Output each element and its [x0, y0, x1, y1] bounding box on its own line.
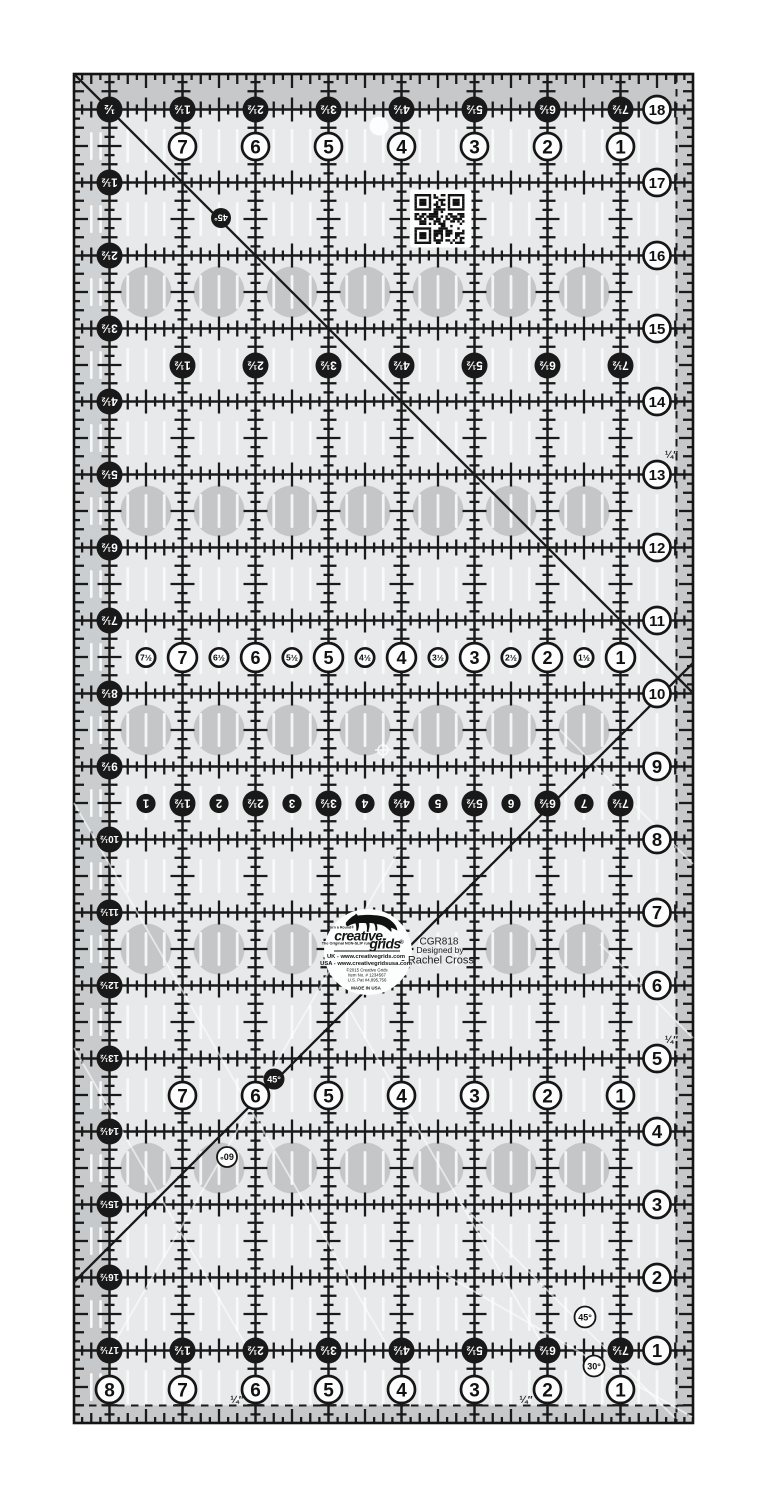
svg-text:13: 13 — [649, 467, 666, 484]
svg-text:1½: 1½ — [174, 102, 191, 116]
svg-text:2: 2 — [542, 648, 552, 668]
svg-text:2: 2 — [216, 796, 222, 808]
svg-text:13½: 13½ — [100, 1052, 119, 1063]
svg-text:5: 5 — [323, 648, 333, 668]
svg-text:4½: 4½ — [101, 394, 118, 408]
svg-text:11: 11 — [649, 613, 665, 630]
svg-text:10½: 10½ — [100, 833, 119, 844]
svg-text:4: 4 — [361, 796, 368, 808]
svg-text:The Original NON-SLIP ruler™: The Original NON-SLIP ruler™ — [322, 941, 377, 945]
svg-text:3: 3 — [652, 1194, 662, 1215]
svg-text:1: 1 — [615, 1086, 626, 1107]
svg-text:2½: 2½ — [101, 248, 118, 262]
svg-text:45°: 45° — [214, 213, 228, 223]
svg-text:6: 6 — [250, 648, 260, 668]
svg-text:12: 12 — [649, 540, 666, 557]
svg-text:6½: 6½ — [539, 102, 556, 116]
svg-text:7½: 7½ — [612, 102, 629, 116]
svg-text:15½: 15½ — [100, 1198, 119, 1209]
svg-text:1: 1 — [615, 648, 625, 668]
svg-text:4: 4 — [652, 1121, 663, 1142]
svg-text:2½: 2½ — [247, 1343, 264, 1357]
svg-text:7½: 7½ — [612, 1343, 629, 1357]
svg-text:6½: 6½ — [539, 796, 556, 810]
svg-text:4: 4 — [396, 648, 406, 668]
svg-text:2½: 2½ — [247, 796, 264, 810]
svg-text:1½: 1½ — [174, 358, 191, 372]
svg-text:6: 6 — [652, 975, 662, 996]
svg-text:12½: 12½ — [100, 979, 119, 990]
svg-text:5½: 5½ — [466, 1343, 483, 1357]
svg-text:¼″: ¼″ — [519, 1395, 532, 1406]
svg-text:USA - www.creativegridsusa.com: USA - www.creativegridsusa.com — [320, 961, 412, 967]
svg-text:U.S. Pat #4,895,756: U.S. Pat #4,895,756 — [348, 978, 387, 983]
svg-text:4½: 4½ — [393, 796, 410, 810]
svg-text:2½: 2½ — [505, 653, 517, 663]
svg-text:16½: 16½ — [100, 1271, 119, 1282]
svg-text:1½: 1½ — [101, 175, 118, 189]
svg-text:4½: 4½ — [393, 358, 410, 372]
svg-text:6: 6 — [250, 1380, 261, 1401]
svg-text:30°: 30° — [587, 1362, 601, 1372]
svg-text:45°: 45° — [578, 1313, 592, 1323]
svg-text:3½: 3½ — [320, 1343, 337, 1357]
svg-text:3½: 3½ — [432, 653, 444, 663]
svg-text:2: 2 — [652, 1267, 662, 1288]
svg-text:7: 7 — [177, 137, 188, 158]
svg-text:6: 6 — [250, 137, 261, 158]
svg-text:7½: 7½ — [101, 613, 118, 627]
svg-text:2: 2 — [542, 1380, 553, 1401]
svg-text:5½: 5½ — [286, 653, 298, 663]
svg-text:9½: 9½ — [101, 759, 118, 773]
svg-text:5½: 5½ — [466, 796, 483, 810]
svg-text:11½: 11½ — [100, 906, 119, 917]
svg-text:3½: 3½ — [320, 358, 337, 372]
svg-text:7: 7 — [652, 902, 662, 923]
svg-text:16: 16 — [649, 248, 666, 265]
svg-text:9: 9 — [652, 756, 662, 777]
svg-text:7½: 7½ — [612, 796, 629, 810]
svg-text:6: 6 — [508, 796, 514, 808]
svg-text:4½: 4½ — [359, 653, 371, 663]
svg-text:- Rachel Cross: - Rachel Cross — [401, 955, 474, 967]
svg-text:17½: 17½ — [100, 1344, 119, 1355]
svg-text:4: 4 — [396, 1380, 407, 1401]
svg-text:7½: 7½ — [612, 358, 629, 372]
svg-text:3: 3 — [469, 1086, 480, 1107]
svg-text:6½: 6½ — [539, 1343, 556, 1357]
svg-text:5: 5 — [323, 1380, 334, 1401]
svg-text:¼″: ¼″ — [230, 1395, 243, 1406]
svg-text:3: 3 — [469, 137, 480, 158]
svg-text:½: ½ — [104, 102, 115, 117]
svg-text:2: 2 — [542, 1086, 553, 1107]
svg-text:MADE IN USA: MADE IN USA — [351, 986, 382, 991]
svg-text:14½: 14½ — [100, 1125, 119, 1136]
svg-text:18: 18 — [649, 102, 666, 119]
svg-text:8: 8 — [652, 829, 662, 850]
svg-text:4: 4 — [396, 1086, 407, 1107]
svg-text:7: 7 — [177, 1380, 188, 1401]
svg-text:3: 3 — [289, 796, 295, 808]
svg-text:7: 7 — [581, 796, 587, 808]
svg-text:5½: 5½ — [101, 467, 118, 481]
svg-text:3: 3 — [469, 648, 479, 668]
svg-text:Designed by: Designed by — [416, 945, 464, 955]
svg-text:5: 5 — [323, 1086, 334, 1107]
svg-text:5½: 5½ — [466, 358, 483, 372]
svg-text:4½: 4½ — [393, 102, 410, 116]
svg-text:15: 15 — [649, 321, 666, 338]
svg-text:17: 17 — [649, 175, 666, 192]
svg-text:5: 5 — [652, 1048, 662, 1069]
svg-text:1½: 1½ — [578, 653, 590, 663]
svg-text:60°: 60° — [220, 1152, 234, 1162]
svg-text:14: 14 — [649, 394, 666, 411]
svg-text:45°: 45° — [267, 1075, 281, 1085]
svg-text:6½: 6½ — [539, 358, 556, 372]
svg-text:1: 1 — [142, 796, 149, 808]
svg-text:1: 1 — [615, 137, 626, 158]
svg-text:4: 4 — [396, 137, 407, 158]
svg-text:UK - www.creativegrids.com: UK - www.creativegrids.com — [327, 954, 405, 960]
svg-text:1: 1 — [615, 1380, 626, 1401]
svg-text:1: 1 — [652, 1340, 662, 1361]
svg-text:2½: 2½ — [247, 102, 264, 116]
svg-text:3½: 3½ — [320, 796, 337, 810]
svg-text:3: 3 — [469, 1380, 480, 1401]
svg-text:3½: 3½ — [101, 321, 118, 335]
svg-text:2½: 2½ — [247, 358, 264, 372]
svg-text:8: 8 — [104, 1380, 115, 1401]
svg-text:5½: 5½ — [466, 102, 483, 116]
svg-text:1½: 1½ — [174, 1343, 191, 1357]
svg-text:¼″: ¼″ — [665, 450, 678, 461]
svg-text:6½: 6½ — [213, 653, 225, 663]
svg-text:®: ® — [399, 939, 404, 946]
svg-text:5: 5 — [434, 796, 441, 808]
svg-text:8½: 8½ — [101, 686, 118, 700]
svg-text:4½: 4½ — [393, 1343, 410, 1357]
svg-text:grids: grids — [368, 936, 401, 952]
svg-text:3½: 3½ — [320, 102, 337, 116]
svg-text:1½: 1½ — [174, 796, 191, 810]
svg-text:5: 5 — [323, 137, 334, 158]
svg-text:7: 7 — [177, 1086, 188, 1107]
svg-text:10: 10 — [649, 686, 666, 703]
svg-text:6: 6 — [250, 1086, 261, 1107]
svg-text:2: 2 — [542, 137, 553, 158]
svg-text:7: 7 — [177, 648, 187, 668]
svg-text:6½: 6½ — [101, 540, 118, 554]
svg-text:7½: 7½ — [140, 653, 152, 663]
svg-text:¼″: ¼″ — [665, 1035, 678, 1046]
